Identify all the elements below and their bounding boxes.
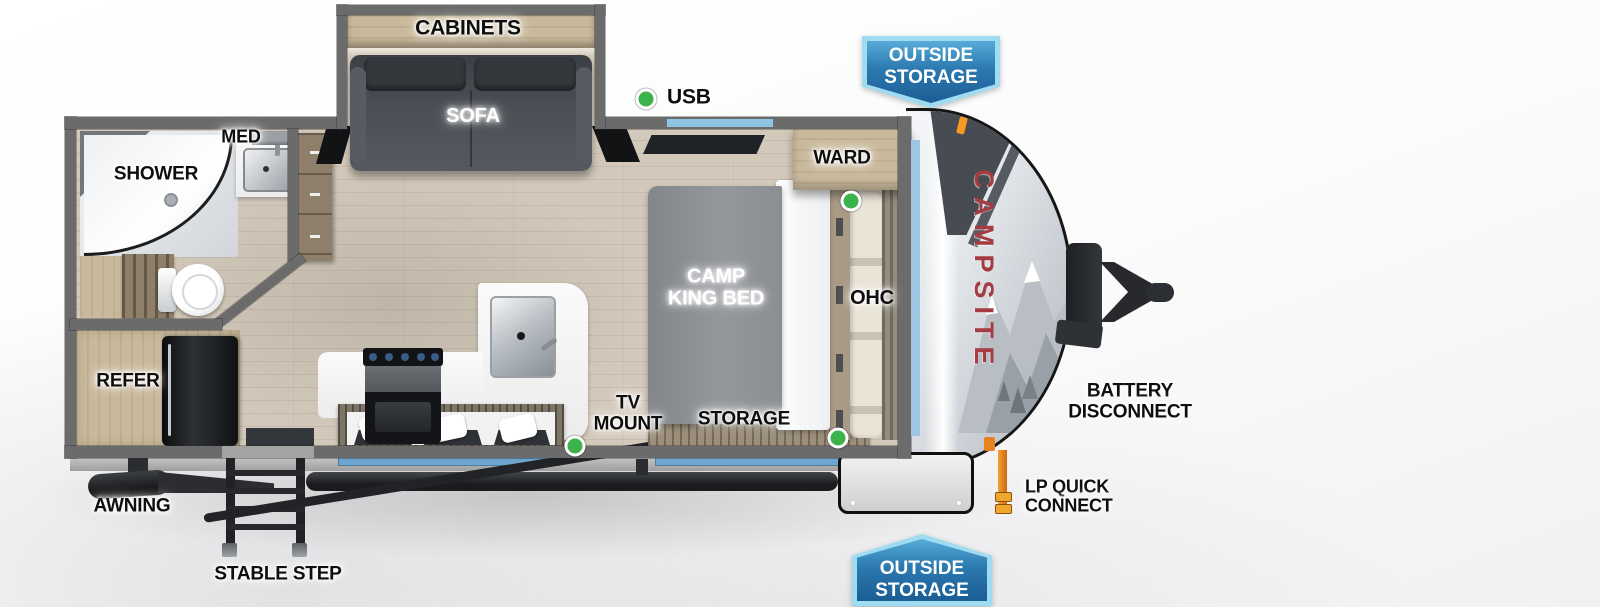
label-usb: USB (667, 87, 711, 110)
refrigerator-door (162, 336, 238, 446)
floorplan-canvas: CAMPSITE (0, 0, 1600, 607)
bath-base-cabinet (80, 256, 122, 318)
lp-quick-connect-elbow (984, 437, 995, 451)
label-tv-mount: TV MOUNT (594, 393, 663, 434)
label-ward: WARD (813, 149, 870, 170)
wall-top-left-segment (65, 117, 339, 129)
ward-usb-marker (841, 191, 862, 212)
badge-top-line1: OUTSIDE (862, 45, 1000, 67)
badge-bottom-line1: OUTSIDE (852, 558, 992, 580)
label-camp-king-bed: CAMP KING BED (668, 266, 764, 309)
shower (80, 131, 238, 257)
label-sofa: SOFA (446, 106, 500, 128)
tv-mount-marker (565, 436, 586, 457)
label-awning: AWNING (94, 497, 171, 518)
usb-marker (636, 89, 657, 110)
label-battery-disconnect: BATTERY DISCONNECT (1068, 381, 1192, 422)
toilet (158, 264, 224, 316)
storage-compartment-door (838, 452, 974, 514)
badge-bottom-line2: STORAGE (852, 580, 992, 602)
front-cap: CAMPSITE (906, 108, 1073, 468)
outside-storage-badge-bottom: OUTSIDE STORAGE (852, 534, 992, 606)
lp-connector-band-2 (995, 504, 1012, 514)
wall-right (898, 117, 911, 458)
label-stable-step: STABLE STEP (214, 565, 341, 586)
awning-bracket-right (636, 459, 648, 475)
label-storage: STORAGE (698, 410, 790, 431)
tv-mount-bracket (643, 135, 765, 154)
bathroom-wall-right (288, 129, 298, 261)
brand-text: CAMPSITE (968, 169, 999, 449)
kitchen-sink (490, 296, 556, 378)
hitch-coupler-arm (1146, 283, 1174, 302)
bed-sheet-band (776, 180, 830, 430)
label-cabinets: CABINETS (415, 18, 521, 41)
slide-wall-right (595, 5, 605, 129)
slide-wall-top (337, 5, 605, 15)
entry-door-mat (246, 428, 314, 447)
window-strip-front (911, 140, 920, 436)
bed-lift-rail (830, 188, 850, 440)
bath-sink (243, 148, 292, 192)
stove (363, 348, 443, 444)
label-shower: SHOWER (114, 165, 198, 186)
entry-door-opening (222, 446, 314, 458)
wall-left (65, 117, 76, 458)
storage-marker (828, 428, 849, 449)
label-med: MED (221, 127, 260, 146)
window-strip-top (667, 119, 773, 127)
wall-bottom (65, 446, 910, 458)
bathroom-wall-bottom (70, 319, 222, 330)
slide-wall-left (337, 5, 347, 129)
headboard-cushions (850, 192, 882, 438)
badge-top-line2: STORAGE (862, 67, 1000, 89)
window-strip-bottom-right (655, 457, 848, 466)
lp-connector-band-1 (995, 492, 1012, 502)
label-refer: REFER (96, 372, 159, 393)
outside-storage-badge-top: OUTSIDE STORAGE (862, 36, 1000, 108)
label-ohc: OHC (850, 288, 894, 310)
label-lp-quick-connect: LP QUICK CONNECT (1025, 478, 1113, 517)
